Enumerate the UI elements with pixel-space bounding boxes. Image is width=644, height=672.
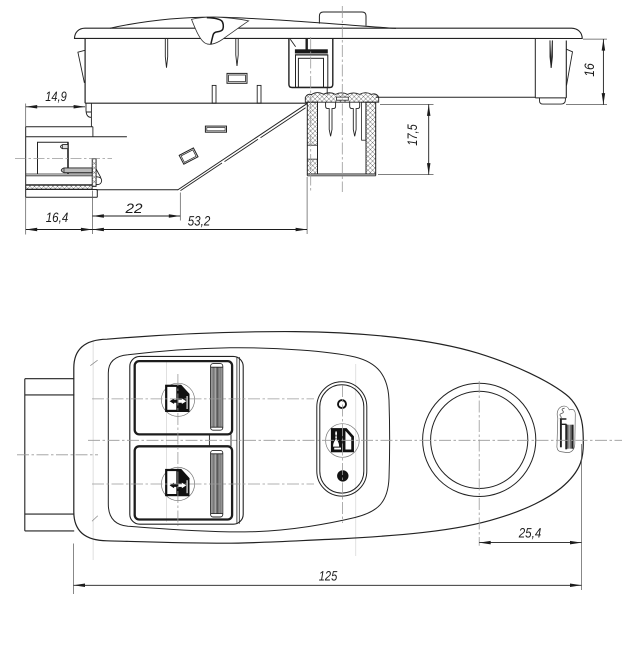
svg-text:16: 16 bbox=[582, 63, 597, 77]
svg-text:53,2: 53,2 bbox=[188, 213, 211, 228]
svg-text:17,5: 17,5 bbox=[405, 124, 420, 146]
svg-text:125: 125 bbox=[319, 568, 338, 583]
svg-text:16,4: 16,4 bbox=[46, 210, 69, 225]
svg-text:22: 22 bbox=[124, 201, 143, 216]
svg-text:14,9: 14,9 bbox=[45, 89, 67, 104]
svg-text:25,4: 25,4 bbox=[518, 525, 542, 540]
